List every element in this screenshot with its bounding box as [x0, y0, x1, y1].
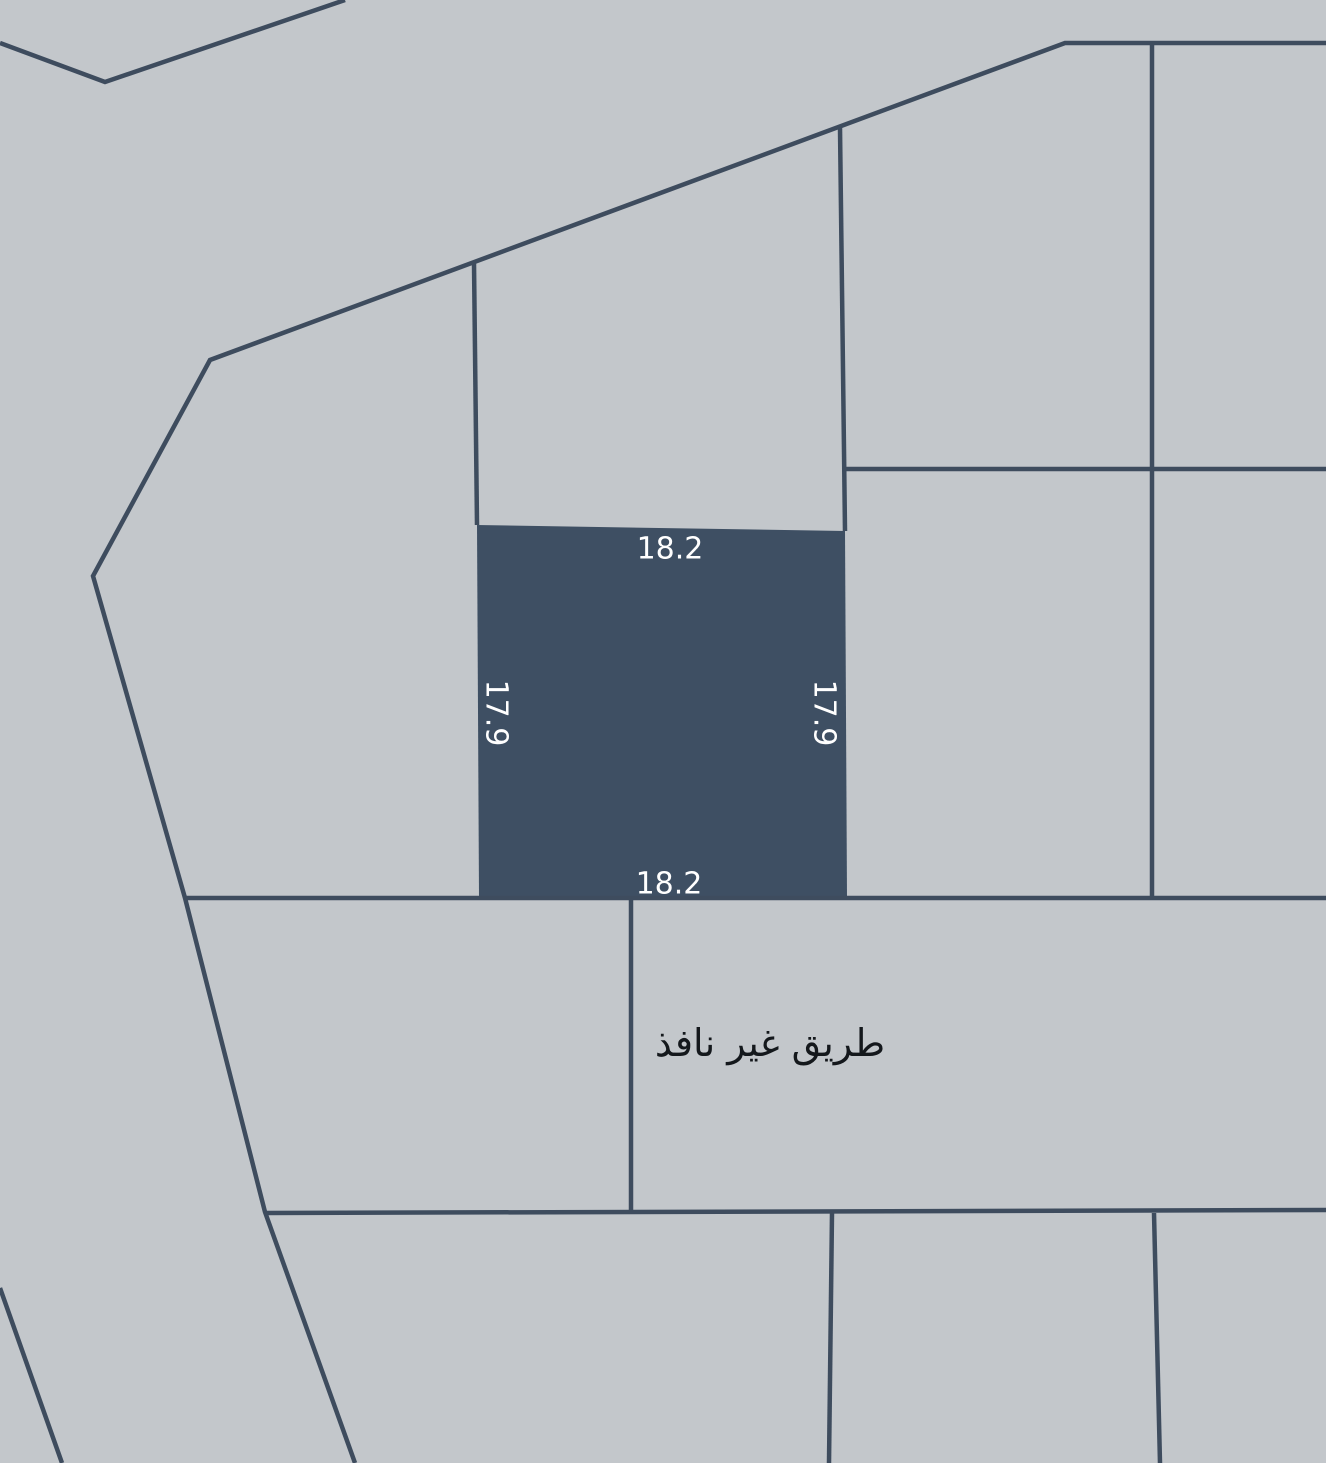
cadastral-map-canvas[interactable]: 18.217.917.918.2طريق غير نافذ [0, 0, 1326, 1463]
highlighted-plot[interactable] [477, 525, 847, 897]
road-label: طريق غير نافذ [655, 1021, 885, 1066]
parcel-divider-above-plot-west [474, 263, 477, 525]
plot-dimension-south: 18.2 [636, 867, 703, 902]
road-south-edge [265, 1210, 1326, 1213]
parcel-map-svg: 18.217.917.918.2طريق غير نافذ [0, 0, 1326, 1463]
south-parcel-divider-west [829, 1213, 832, 1463]
plot-dimension-north: 18.2 [637, 532, 704, 567]
plot-dimension-west: 17.9 [479, 680, 514, 747]
plot-dimension-east: 17.9 [807, 680, 842, 747]
